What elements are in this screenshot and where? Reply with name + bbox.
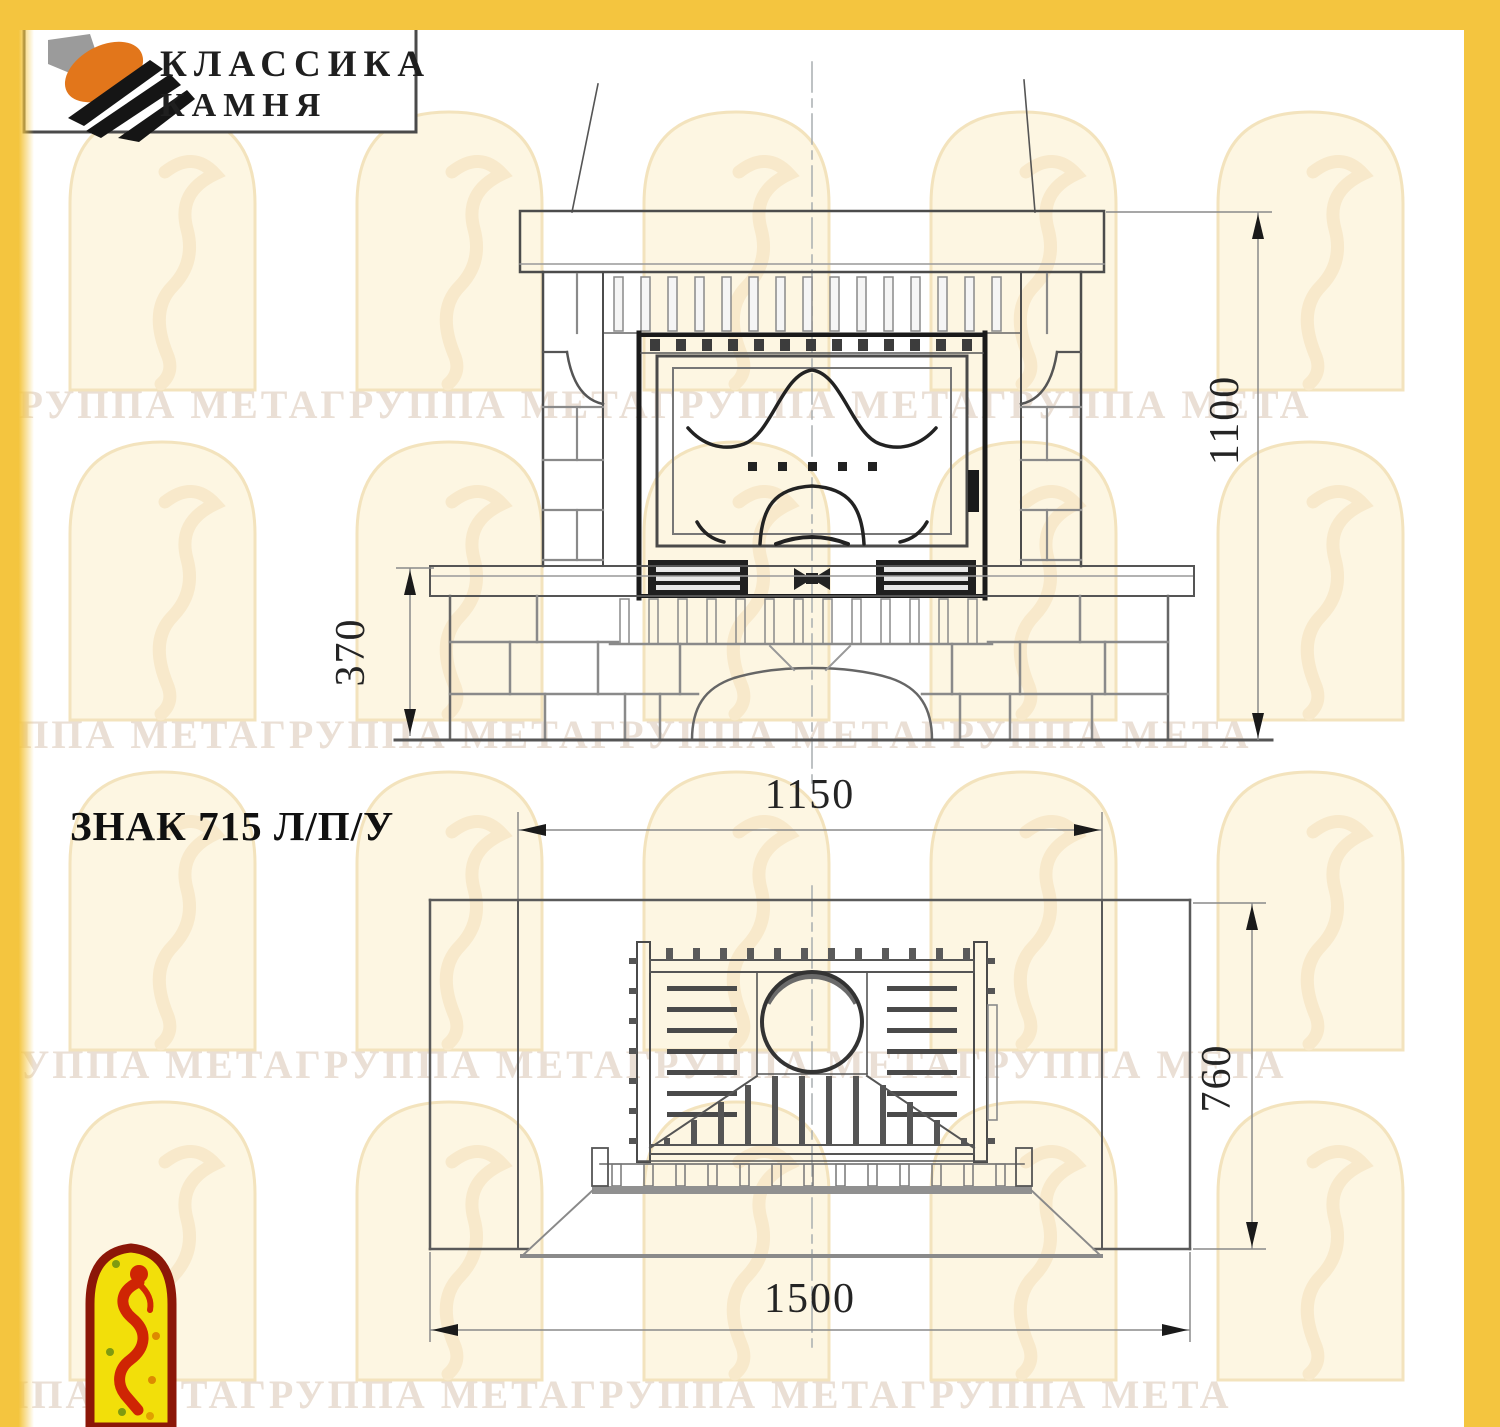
dentil [780, 339, 790, 351]
grill-bar [667, 1049, 737, 1054]
plate-tick [987, 958, 995, 964]
plinth-dentil [852, 599, 861, 644]
dentil [650, 339, 660, 351]
frieze-slat [803, 277, 812, 331]
grate-bar [772, 1076, 778, 1146]
grate-bar [853, 1076, 859, 1146]
dentil [806, 339, 816, 351]
dentil [754, 339, 764, 351]
frieze-slat [830, 277, 839, 331]
grill-bar [887, 1007, 957, 1012]
frieze-slat [965, 277, 974, 331]
frieze-slat [614, 277, 623, 331]
plan-top-slat [855, 948, 862, 960]
band-slat [836, 1164, 845, 1186]
grill-bar [667, 986, 737, 991]
dim-label-plinth-height: 370 [328, 618, 374, 687]
plinth-dentil [620, 599, 629, 644]
plate-tick [629, 1048, 637, 1054]
grill-bar [887, 986, 957, 991]
left-leader-line [572, 84, 598, 212]
frieze-slat [911, 277, 920, 331]
grill-bar [887, 1070, 957, 1075]
grille-slot [656, 585, 740, 590]
dim-label-total-width: 1500 [764, 1276, 856, 1322]
dentil [858, 339, 868, 351]
plan-top-slat [693, 948, 700, 960]
grill-bar [667, 1070, 737, 1075]
frieze-slat-row [614, 277, 1001, 331]
grate-bar [907, 1102, 913, 1146]
frieze-slat [749, 277, 758, 331]
band-left-bracket [592, 1148, 608, 1186]
jester-logo [90, 1248, 172, 1427]
brand-name-line2: КАМНЯ [160, 87, 327, 124]
plan-top-slat [666, 948, 673, 960]
plate-tick [629, 1138, 637, 1144]
dentil [910, 339, 920, 351]
grate-bar [799, 1076, 805, 1146]
dim-label-top-width: 1150 [765, 772, 855, 818]
plate-tick [987, 988, 995, 994]
plate-tick [629, 1078, 637, 1084]
band-slat [868, 1164, 877, 1186]
dentil [728, 339, 738, 351]
plate-tick [629, 1108, 637, 1114]
spec-sheet-canvas: ГРУППА МЕТАГРУППА МЕТАГРУППА МЕТАГРУППА … [0, 0, 1500, 1427]
plan-top-slat [936, 948, 943, 960]
band-slat [900, 1164, 909, 1186]
plan-left-plate-ticks [629, 958, 637, 1144]
grate-bar [880, 1085, 886, 1146]
frieze-slat [641, 277, 650, 331]
model-title: ЗНАК 715 Л/П/У [70, 803, 394, 849]
frieze-slat [776, 277, 785, 331]
dentil [702, 339, 712, 351]
brand-logo: КЛАССИКА КАМНЯ [24, 22, 431, 142]
plan-top-slat [774, 948, 781, 960]
fireplace-spec-sheet: ГРУППА МЕТАГРУППА МЕТАГРУППА МЕТАГРУППА … [0, 0, 1500, 1427]
plan-top-slat [747, 948, 754, 960]
plate-tick [629, 988, 637, 994]
grill-bar [887, 1049, 957, 1054]
plate-tick [629, 958, 637, 964]
plate-tick [987, 1138, 995, 1144]
plan-top-slat [909, 948, 916, 960]
grille-slot [656, 567, 740, 572]
dentil [884, 339, 894, 351]
plinth-dentil [910, 599, 919, 644]
dim-label-total-height: 1100 [1202, 375, 1248, 465]
frieze-slat [938, 277, 947, 331]
watermark-text: ГРУППА МЕТАГРУППА МЕТАГРУППА МЕТАГРУППА … [0, 1042, 1286, 1087]
dim-label-depth: 760 [1194, 1044, 1240, 1113]
band-slat [612, 1164, 621, 1186]
grill-bar [667, 1091, 737, 1096]
brand-name-line1: КЛАССИКА [160, 44, 431, 85]
plan-top-slat [828, 948, 835, 960]
band-bottom-bar [592, 1186, 1032, 1194]
grate-bar [718, 1102, 724, 1146]
dentil [832, 339, 842, 351]
plan-top-slat [882, 948, 889, 960]
grill-bar [667, 1028, 737, 1033]
page-border-left [0, 0, 34, 1427]
plan-top-slat [801, 948, 808, 960]
dentil [962, 339, 972, 351]
dentil [676, 339, 686, 351]
grill-bar [887, 1091, 957, 1096]
frieze-slat [992, 277, 1001, 331]
frieze-slat [668, 277, 677, 331]
plan-top-slat [963, 948, 970, 960]
plan-top-slat [720, 948, 727, 960]
plinth-dentil [881, 599, 890, 644]
grill-bar [667, 1007, 737, 1012]
frieze-slat [884, 277, 893, 331]
dentil [936, 339, 946, 351]
grate-bar [745, 1085, 751, 1146]
watermark-text: ГРУППА МЕТАГРУППА МЕТАГРУППА МЕТАГРУППА … [0, 1372, 1231, 1417]
frieze-slat [695, 277, 704, 331]
page-border-top [0, 0, 1500, 30]
plate-tick [629, 1018, 637, 1024]
frieze-slat [722, 277, 731, 331]
grate-bar [826, 1076, 832, 1146]
door-handle [968, 470, 979, 512]
grate-bar [691, 1120, 697, 1146]
grill-bar [887, 1028, 957, 1033]
grille-slot [884, 585, 968, 590]
grille-slot [884, 567, 968, 572]
page-border-right [1464, 0, 1500, 1427]
frieze-slat [857, 277, 866, 331]
grate-bar [934, 1120, 940, 1146]
